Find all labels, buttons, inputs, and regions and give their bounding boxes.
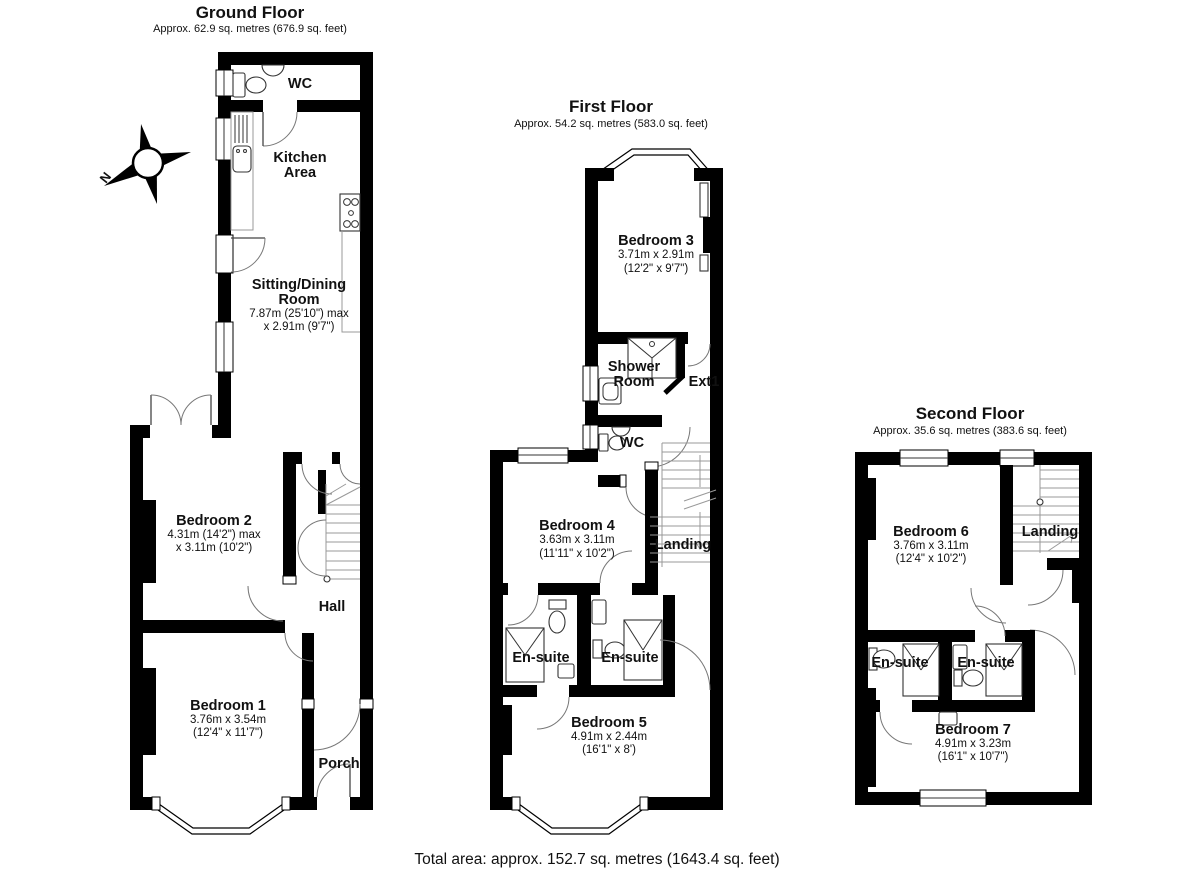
room-dim-bedroom7-1: 4.91m x 3.23m	[935, 738, 1011, 750]
room-label-bedroom2: Bedroom 2	[176, 513, 252, 529]
kitchen-cooker	[340, 194, 360, 231]
room-dim-bedroom3-1: 3.71m x 2.91m	[618, 249, 694, 261]
room-dim-bedroom6-1: 3.76m x 3.11m	[893, 540, 968, 552]
room-label-wc-ground: WC	[288, 76, 313, 92]
room-label-bedroom7: Bedroom 7	[935, 722, 1011, 738]
room-label-ensuite-left-second: En-suite	[871, 655, 928, 671]
bedroom3-wardrobe	[700, 183, 708, 217]
room-label-ensuite-left-first: En-suite	[512, 650, 569, 666]
room-label-bedroom1: Bedroom 1	[190, 698, 266, 714]
room-label-sitting-2: Room	[278, 292, 319, 308]
first-floor-area: Approx. 54.2 sq. metres (583.0 sq. feet)	[514, 118, 708, 130]
room-label-shower: Shower	[608, 359, 661, 375]
room-label-kitchen: Kitchen	[273, 150, 326, 166]
room-dim-sitting-1: 7.87m (25'10") max	[249, 308, 349, 320]
room-dim-bedroom4-1: 3.63m x 3.11m	[539, 534, 614, 546]
room-label-wc-first: WC	[620, 435, 645, 451]
ground-floor-title: Ground Floor	[196, 3, 305, 22]
ground-bay-window	[152, 797, 290, 834]
room-label-kitchen-2: Area	[284, 165, 317, 181]
room-dim-bedroom1-2: (12'4" x 11'7")	[193, 727, 263, 739]
room-dim-bedroom4-2: (11'11" x 10'2")	[539, 548, 615, 560]
room-label-bedroom5: Bedroom 5	[571, 715, 647, 731]
room-dim-bedroom5-1: 4.91m x 2.44m	[571, 731, 647, 743]
room-dim-bedroom1-1: 3.76m x 3.54m	[190, 714, 266, 726]
room-label-sitting: Sitting/Dining	[252, 277, 346, 293]
room-label-landing-second: Landing	[1022, 524, 1078, 540]
room-label-ext1: Ext1	[689, 374, 720, 390]
room-dim-bedroom7-2: (16'1" x 10'7")	[938, 751, 1009, 763]
floorplan-page: Ground Floor Approx. 62.9 sq. metres (67…	[0, 0, 1200, 873]
total-area-note: Total area: approx. 152.7 sq. metres (16…	[414, 851, 779, 868]
first-bay-window-bottom	[512, 797, 648, 834]
room-label-ensuite-right-first: En-suite	[601, 650, 658, 666]
room-label-hall: Hall	[319, 599, 346, 615]
compass-rose: N	[97, 124, 191, 204]
room-dim-bedroom2-2: x 3.11m (10'2")	[176, 542, 253, 554]
room-label-bedroom6: Bedroom 6	[893, 524, 969, 540]
second-floor-area: Approx. 35.6 sq. metres (383.6 sq. feet)	[873, 425, 1067, 437]
kitchen-sink-unit	[231, 112, 253, 230]
room-label-ensuite-right-second: En-suite	[957, 655, 1014, 671]
room-dim-bedroom3-2: (12'2" x 9'7")	[624, 263, 689, 275]
room-dim-bedroom6-2: (12'4" x 10'2")	[896, 553, 967, 565]
room-dim-bedroom2-1: 4.31m (14'2") max	[167, 529, 260, 541]
room-label-bedroom4: Bedroom 4	[539, 518, 615, 534]
first-floor-title: First Floor	[569, 97, 653, 116]
ground-floor-plan: Ground Floor Approx. 62.9 sq. metres (67…	[130, 3, 373, 834]
ground-floor-area: Approx. 62.9 sq. metres (676.9 sq. feet)	[153, 23, 347, 35]
room-label-landing-first: Landing	[655, 537, 711, 553]
ensuite-left-fixtures-first	[506, 600, 574, 682]
ensuite-right-fixtures-first	[592, 600, 662, 680]
room-label-shower-2: Room	[613, 374, 654, 390]
first-floor-plan: First Floor Approx. 54.2 sq. metres (583…	[490, 97, 723, 834]
room-label-bedroom3: Bedroom 3	[618, 233, 694, 249]
room-label-porch: Porch	[318, 756, 359, 772]
room-dim-sitting-2: x 2.91m (9'7")	[264, 321, 335, 333]
floorplan-drawing: Ground Floor Approx. 62.9 sq. metres (67…	[0, 0, 1200, 873]
second-floor-plan: Second Floor Approx. 35.6 sq. metres (38…	[855, 404, 1092, 806]
room-dim-bedroom5-2: (16'1" x 8')	[582, 744, 636, 756]
second-floor-title: Second Floor	[916, 404, 1025, 423]
